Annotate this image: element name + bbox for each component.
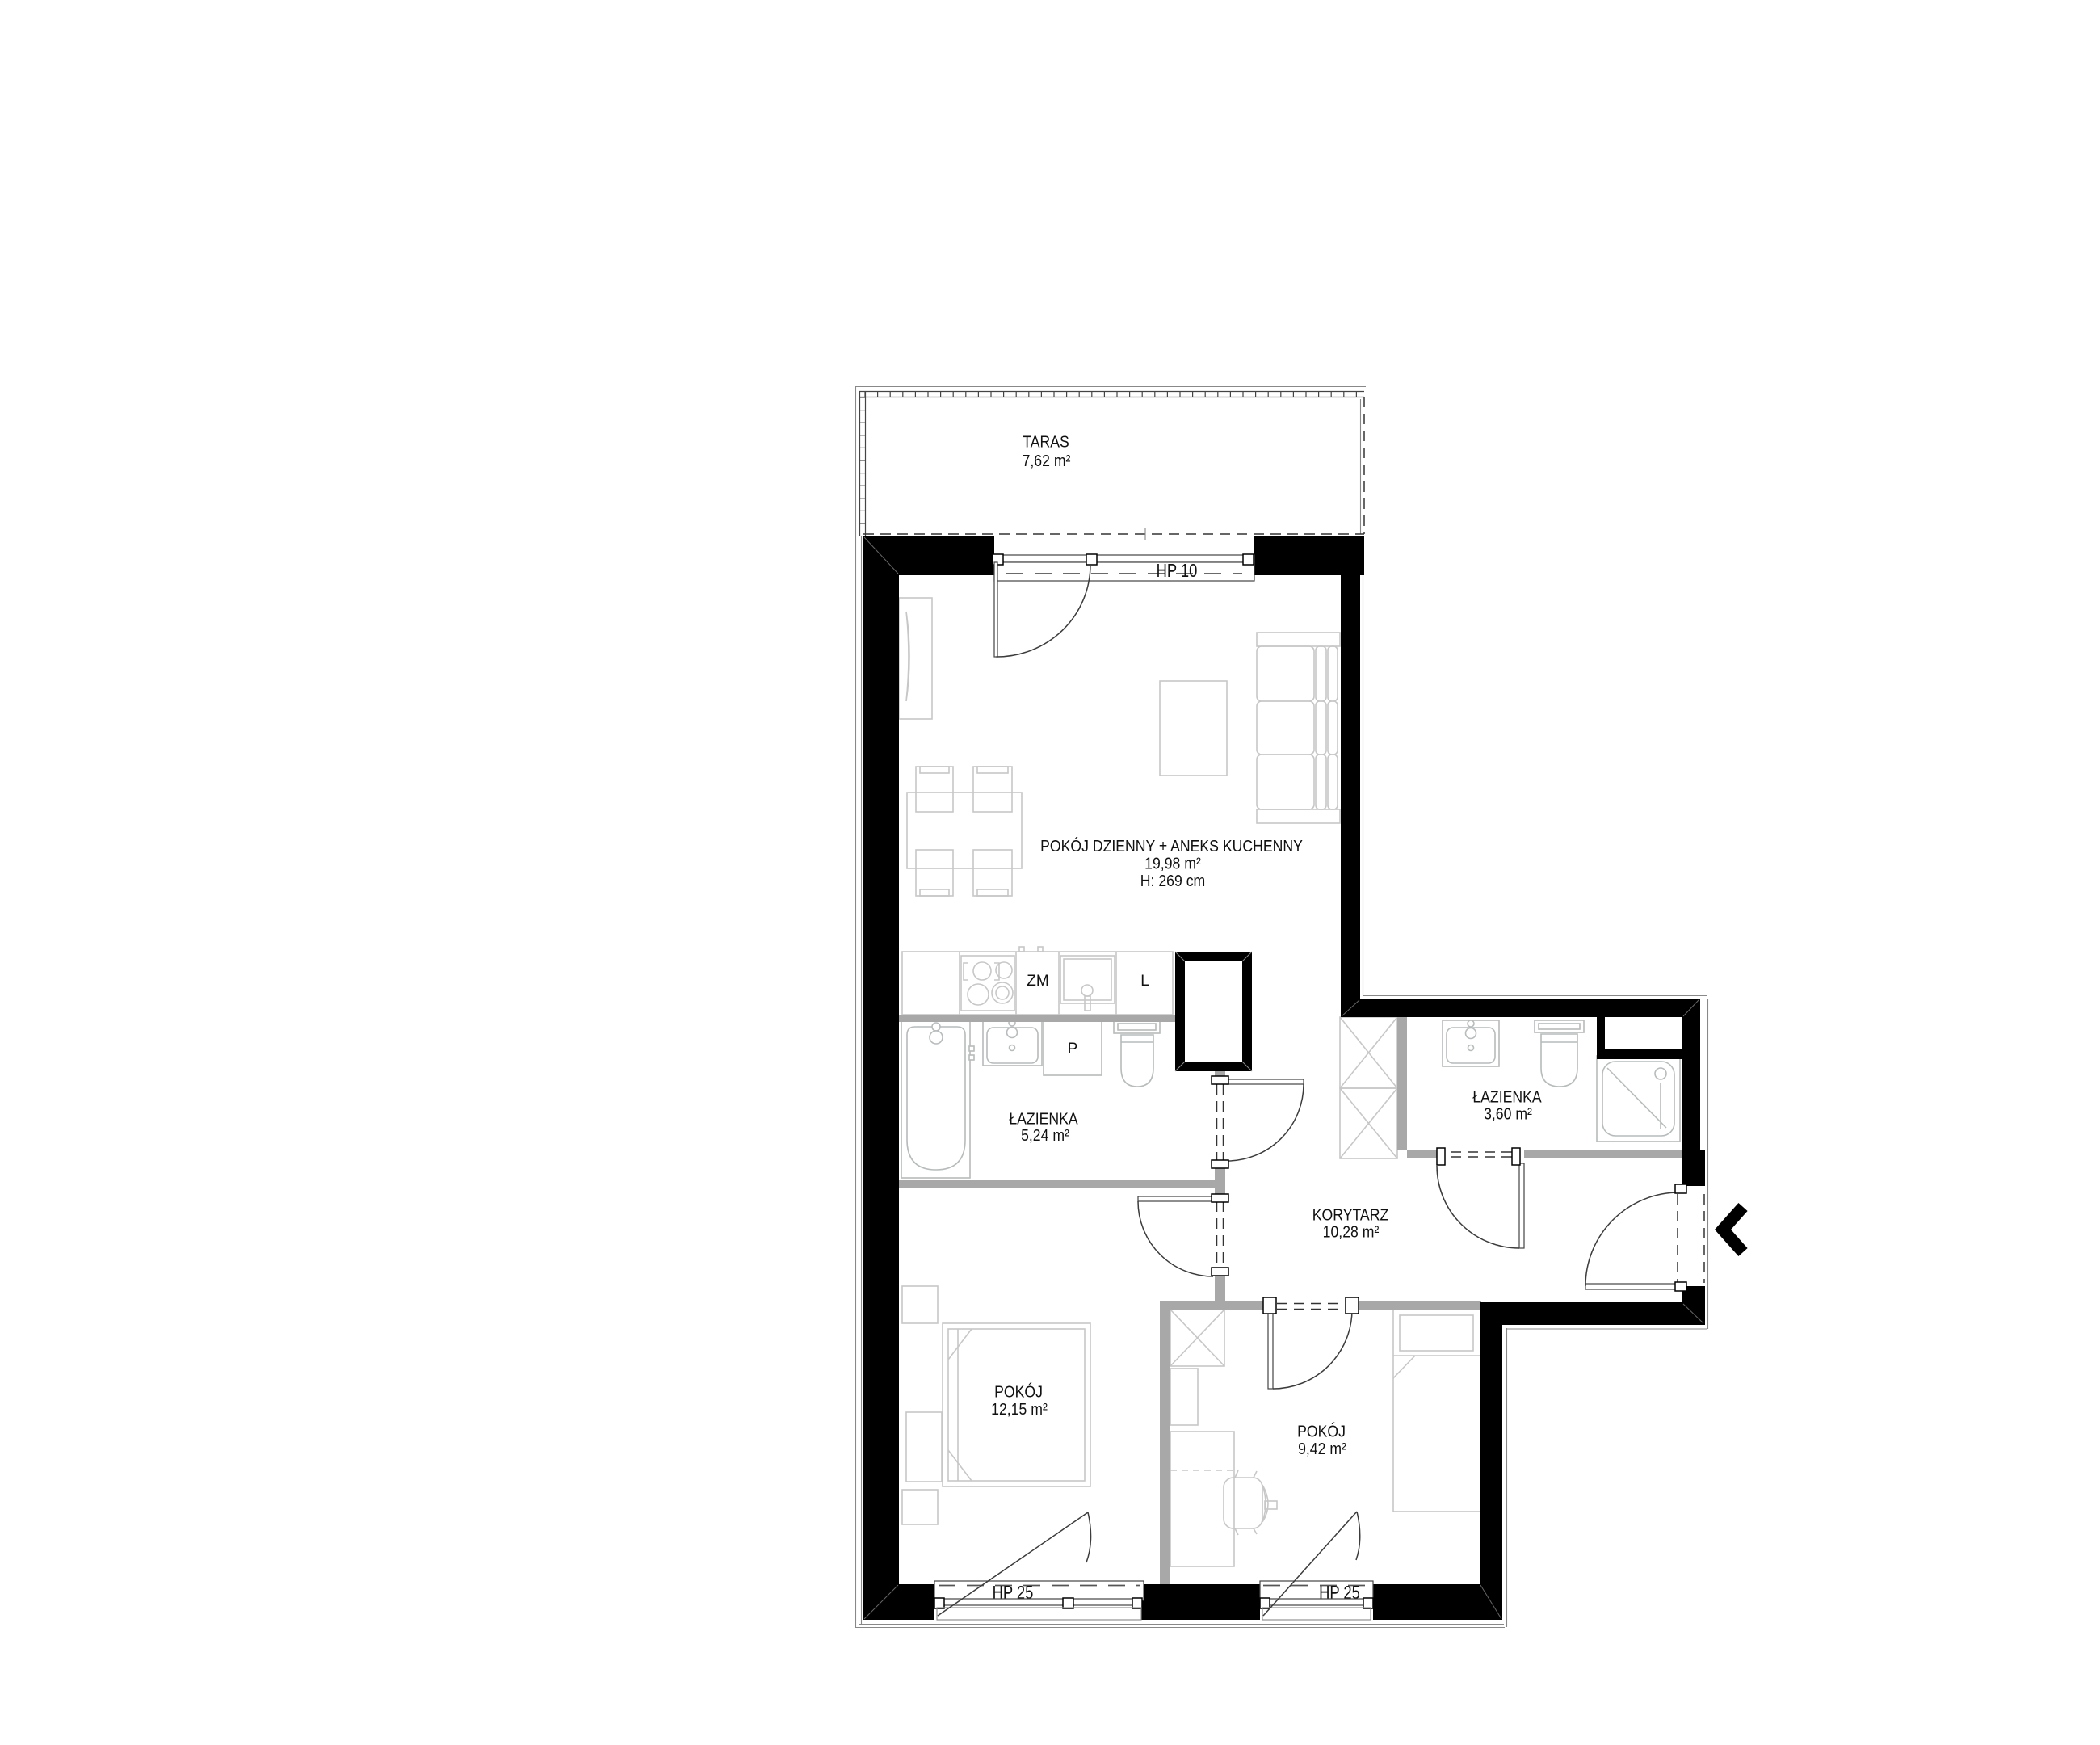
svg-text:KORYTARZ: KORYTARZ xyxy=(1312,1206,1389,1224)
svg-text:POKÓJ: POKÓJ xyxy=(994,1382,1043,1401)
svg-text:7,62 m²: 7,62 m² xyxy=(1023,452,1071,470)
svg-text:3,60 m²: 3,60 m² xyxy=(1484,1105,1532,1123)
svg-text:12,15 m²: 12,15 m² xyxy=(991,1401,1048,1419)
svg-text:ŁAZIENKA: ŁAZIENKA xyxy=(1009,1110,1078,1128)
svg-text:TARAS: TARAS xyxy=(1023,433,1069,451)
svg-text:10,28 m²: 10,28 m² xyxy=(1323,1223,1380,1241)
svg-text:ZM: ZM xyxy=(1027,973,1048,990)
svg-text:POKÓJ DZIENNY + ANEKS KUCHENNY: POKÓJ DZIENNY + ANEKS KUCHENNY xyxy=(1040,837,1303,856)
svg-text:H: 269 cm: H: 269 cm xyxy=(1140,872,1205,890)
svg-text:ŁAZIENKA: ŁAZIENKA xyxy=(1472,1088,1542,1106)
svg-text:9,42 m²: 9,42 m² xyxy=(1298,1440,1346,1458)
svg-text:POKÓJ: POKÓJ xyxy=(1297,1422,1346,1440)
svg-text:P: P xyxy=(1068,1041,1078,1058)
svg-text:HP 10: HP 10 xyxy=(1157,561,1198,581)
svg-text:L: L xyxy=(1140,973,1149,990)
svg-text:19,98 m²: 19,98 m² xyxy=(1144,855,1201,872)
svg-text:5,24 m²: 5,24 m² xyxy=(1021,1127,1069,1145)
